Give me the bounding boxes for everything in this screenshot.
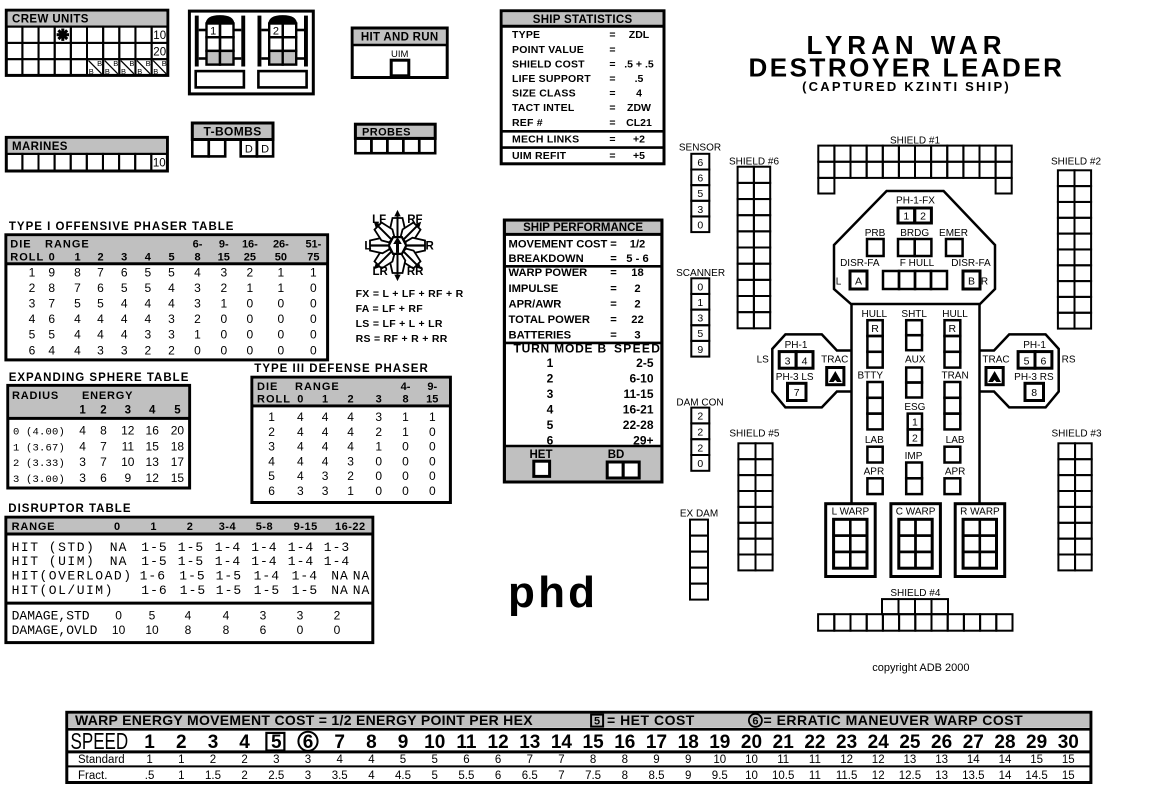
svg-text:0: 0 bbox=[334, 623, 341, 637]
svg-text:5: 5 bbox=[48, 328, 55, 342]
svg-text:.5: .5 bbox=[635, 73, 644, 85]
svg-text:0: 0 bbox=[697, 458, 703, 470]
svg-text:11: 11 bbox=[122, 439, 135, 453]
svg-text:5.5: 5.5 bbox=[458, 770, 474, 782]
svg-text:1-4: 1-4 bbox=[251, 554, 277, 569]
svg-text:1-6: 1-6 bbox=[141, 583, 167, 598]
svg-text:25: 25 bbox=[899, 732, 921, 753]
svg-text:4: 4 bbox=[368, 770, 375, 782]
svg-text:0: 0 bbox=[297, 623, 304, 637]
svg-text:10: 10 bbox=[153, 30, 166, 42]
svg-text:3: 3 bbox=[375, 410, 382, 424]
svg-text:4: 4 bbox=[368, 754, 375, 766]
svg-text:3: 3 bbox=[297, 484, 304, 498]
svg-text:51-: 51- bbox=[305, 239, 321, 251]
svg-text:=: = bbox=[609, 150, 615, 162]
svg-text:2: 2 bbox=[168, 343, 175, 357]
svg-text:1: 1 bbox=[220, 297, 227, 311]
svg-text:16-22: 16-22 bbox=[335, 521, 366, 533]
svg-text:1-4: 1-4 bbox=[251, 540, 277, 555]
svg-text:1: 1 bbox=[278, 265, 285, 279]
svg-text:IMPULSE: IMPULSE bbox=[509, 283, 559, 295]
svg-text:17: 17 bbox=[646, 732, 667, 753]
svg-text:13.5: 13.5 bbox=[962, 770, 984, 782]
svg-text:1: 1 bbox=[903, 211, 909, 223]
svg-text:SENSOR: SENSOR bbox=[679, 143, 721, 154]
svg-text:0 (4.00): 0 (4.00) bbox=[13, 427, 65, 439]
svg-text:HULL: HULL bbox=[862, 309, 888, 320]
svg-text:7: 7 bbox=[334, 732, 345, 753]
svg-text:TYPE I OFFENSIVE PHASER TABLE: TYPE I OFFENSIVE PHASER TABLE bbox=[9, 221, 235, 233]
svg-text:TACT INTEL: TACT INTEL bbox=[512, 102, 575, 114]
svg-text:30: 30 bbox=[1058, 732, 1079, 753]
svg-text:4: 4 bbox=[79, 439, 86, 453]
svg-text:8: 8 bbox=[185, 623, 192, 637]
svg-text:3: 3 bbox=[121, 343, 128, 357]
svg-text:1-4: 1-4 bbox=[292, 569, 318, 584]
svg-text:1-5: 1-5 bbox=[141, 554, 167, 569]
svg-text:4: 4 bbox=[268, 454, 275, 468]
svg-text:Fract.: Fract. bbox=[78, 770, 107, 782]
svg-text:0: 0 bbox=[375, 454, 382, 468]
svg-text:3: 3 bbox=[168, 328, 175, 342]
svg-text:1: 1 bbox=[150, 521, 157, 533]
svg-text:28: 28 bbox=[994, 732, 1015, 753]
svg-text:1-4: 1-4 bbox=[288, 540, 314, 555]
svg-text:1-5: 1-5 bbox=[216, 569, 242, 584]
svg-text:0: 0 bbox=[429, 469, 436, 483]
svg-text:8: 8 bbox=[366, 732, 377, 753]
svg-text:15: 15 bbox=[426, 393, 438, 405]
svg-text:RR: RR bbox=[407, 266, 424, 278]
svg-text:LIFE SUPPORT: LIFE SUPPORT bbox=[512, 73, 591, 85]
svg-text:HULL: HULL bbox=[942, 309, 968, 320]
svg-text:2: 2 bbox=[634, 283, 640, 295]
svg-text:2-5: 2-5 bbox=[636, 356, 654, 370]
svg-text:7: 7 bbox=[100, 455, 107, 469]
svg-text:15: 15 bbox=[583, 732, 605, 753]
svg-text:3: 3 bbox=[194, 281, 201, 295]
svg-text:4: 4 bbox=[144, 312, 151, 326]
svg-text:2: 2 bbox=[210, 754, 216, 766]
svg-text:ZDW: ZDW bbox=[627, 102, 651, 114]
svg-text:R: R bbox=[981, 277, 988, 288]
svg-text:0: 0 bbox=[278, 297, 285, 311]
svg-text:4: 4 bbox=[29, 312, 36, 326]
svg-text:4: 4 bbox=[297, 469, 304, 483]
svg-text:11: 11 bbox=[777, 754, 789, 766]
svg-text:18: 18 bbox=[171, 439, 185, 453]
svg-text:=: = bbox=[609, 73, 615, 85]
svg-text:POINT VALUE: POINT VALUE bbox=[512, 44, 584, 56]
svg-text:1-5: 1-5 bbox=[178, 540, 204, 555]
svg-text:6: 6 bbox=[697, 157, 703, 169]
svg-text:14: 14 bbox=[967, 754, 980, 766]
svg-text:R WARP: R WARP bbox=[960, 507, 1000, 518]
svg-text:13: 13 bbox=[519, 732, 540, 753]
svg-text:1-3: 1-3 bbox=[324, 540, 350, 555]
svg-text:2: 2 bbox=[241, 754, 247, 766]
svg-text:5: 5 bbox=[149, 608, 156, 622]
svg-text:ENERGY: ENERGY bbox=[82, 390, 133, 402]
svg-text:6: 6 bbox=[48, 312, 55, 326]
svg-text:9: 9 bbox=[48, 265, 55, 279]
svg-text:4-: 4- bbox=[401, 381, 411, 393]
svg-text:NA: NA bbox=[110, 554, 128, 569]
svg-text:5 - 6: 5 - 6 bbox=[626, 253, 648, 265]
svg-text:1: 1 bbox=[402, 425, 409, 439]
svg-text:2: 2 bbox=[634, 298, 640, 310]
svg-text:L WARP: L WARP bbox=[832, 507, 870, 518]
svg-text:1: 1 bbox=[310, 265, 317, 279]
svg-text:0: 0 bbox=[247, 343, 254, 357]
svg-text:NA: NA bbox=[353, 569, 371, 584]
svg-text:29: 29 bbox=[1026, 732, 1047, 753]
svg-text:RS = RF + R + RR: RS = RF + R + RR bbox=[356, 333, 448, 345]
svg-text:9: 9 bbox=[685, 770, 691, 782]
svg-text:7: 7 bbox=[100, 439, 107, 453]
svg-text:4: 4 bbox=[297, 440, 304, 454]
svg-text:6: 6 bbox=[121, 265, 128, 279]
svg-text:ZDL: ZDL bbox=[629, 29, 650, 41]
svg-text:0: 0 bbox=[375, 484, 382, 498]
svg-text:4: 4 bbox=[347, 440, 354, 454]
svg-text:8: 8 bbox=[223, 623, 230, 637]
svg-text:EMER: EMER bbox=[939, 228, 968, 239]
svg-text:6: 6 bbox=[29, 343, 36, 357]
svg-text:24: 24 bbox=[868, 732, 890, 753]
svg-text:4: 4 bbox=[149, 405, 156, 417]
svg-text:DAMAGE,STD: DAMAGE,STD bbox=[12, 608, 90, 623]
svg-text:6.5: 6.5 bbox=[522, 770, 538, 782]
svg-text:7.5: 7.5 bbox=[585, 770, 601, 782]
svg-text:9-: 9- bbox=[219, 239, 229, 251]
svg-text:F HULL: F HULL bbox=[900, 258, 935, 269]
svg-text:3: 3 bbox=[305, 754, 311, 766]
svg-text:1: 1 bbox=[375, 440, 382, 454]
svg-text:0: 0 bbox=[402, 454, 409, 468]
svg-text:BREAKDOWN: BREAKDOWN bbox=[509, 253, 584, 265]
svg-text:0: 0 bbox=[697, 219, 703, 231]
svg-text:RF: RF bbox=[407, 214, 422, 226]
svg-text:5: 5 bbox=[431, 754, 437, 766]
svg-text:8: 8 bbox=[1031, 387, 1037, 399]
svg-text:AUX: AUX bbox=[905, 355, 926, 366]
svg-text:R: R bbox=[425, 240, 434, 252]
svg-text:4: 4 bbox=[144, 297, 151, 311]
svg-text:0: 0 bbox=[220, 328, 227, 342]
svg-text:RS: RS bbox=[1062, 355, 1076, 366]
svg-text:50: 50 bbox=[275, 252, 287, 264]
svg-text:4: 4 bbox=[322, 454, 329, 468]
svg-text:2: 2 bbox=[100, 405, 106, 417]
svg-text:0: 0 bbox=[220, 312, 227, 326]
svg-text:3: 3 bbox=[194, 297, 201, 311]
svg-text:=: = bbox=[610, 267, 617, 279]
svg-text:20: 20 bbox=[741, 732, 762, 753]
svg-text:22-28: 22-28 bbox=[623, 418, 654, 432]
svg-text:4: 4 bbox=[168, 297, 175, 311]
svg-text:T-BOMBS: T-BOMBS bbox=[204, 124, 262, 138]
svg-text:1: 1 bbox=[79, 405, 86, 417]
svg-text:0: 0 bbox=[247, 312, 254, 326]
svg-text:B: B bbox=[113, 59, 118, 68]
svg-text:1: 1 bbox=[322, 393, 328, 405]
svg-text:=: = bbox=[609, 134, 615, 146]
svg-text:8: 8 bbox=[402, 393, 408, 405]
svg-text:UIM REFIT: UIM REFIT bbox=[512, 150, 567, 162]
svg-text:6: 6 bbox=[100, 471, 107, 485]
svg-text:1-5: 1-5 bbox=[254, 583, 280, 598]
svg-text:0: 0 bbox=[402, 440, 409, 454]
svg-text:4: 4 bbox=[145, 252, 152, 264]
svg-text:11: 11 bbox=[456, 732, 477, 753]
svg-text:9-: 9- bbox=[427, 381, 437, 393]
svg-text:12.5: 12.5 bbox=[899, 770, 921, 782]
svg-text:PH-1-FX: PH-1-FX bbox=[896, 196, 935, 207]
svg-text:2: 2 bbox=[187, 521, 194, 533]
svg-text:1: 1 bbox=[29, 265, 36, 279]
svg-text:8: 8 bbox=[74, 265, 81, 279]
svg-text:0: 0 bbox=[278, 312, 285, 326]
svg-text:0: 0 bbox=[278, 328, 285, 342]
svg-text:27: 27 bbox=[963, 732, 984, 753]
svg-text:4: 4 bbox=[185, 608, 192, 622]
svg-text:3: 3 bbox=[273, 754, 279, 766]
svg-text:5: 5 bbox=[268, 469, 275, 483]
svg-text:A: A bbox=[855, 276, 862, 288]
svg-text:SHIP STATISTICS: SHIP STATISTICS bbox=[533, 14, 633, 26]
svg-text:8: 8 bbox=[194, 252, 200, 264]
svg-text:2: 2 bbox=[334, 608, 341, 622]
svg-text:22: 22 bbox=[631, 314, 643, 326]
svg-text:DISRUPTOR TABLE: DISRUPTOR TABLE bbox=[8, 503, 131, 515]
svg-text:15: 15 bbox=[1030, 754, 1043, 766]
svg-text:8: 8 bbox=[48, 281, 55, 295]
svg-text:APR: APR bbox=[864, 467, 885, 478]
svg-text:3: 3 bbox=[220, 265, 227, 279]
svg-text:4: 4 bbox=[194, 265, 201, 279]
svg-text:0: 0 bbox=[194, 343, 201, 357]
svg-text:HIT(OL/UIM): HIT(OL/UIM) bbox=[12, 583, 114, 598]
svg-text:PH-1: PH-1 bbox=[1023, 340, 1046, 351]
svg-text:13: 13 bbox=[146, 455, 160, 469]
svg-text:1-4: 1-4 bbox=[288, 554, 314, 569]
svg-text:BATTERIES: BATTERIES bbox=[509, 330, 572, 342]
svg-text:2: 2 bbox=[144, 343, 151, 357]
svg-text:8.5: 8.5 bbox=[649, 770, 665, 782]
svg-text:10: 10 bbox=[745, 754, 758, 766]
svg-text:8: 8 bbox=[622, 770, 628, 782]
svg-text:0: 0 bbox=[310, 343, 317, 357]
svg-text:LAB: LAB bbox=[946, 435, 965, 446]
svg-text:CREW UNITS: CREW UNITS bbox=[12, 14, 89, 26]
svg-text:6: 6 bbox=[495, 770, 501, 782]
svg-text:EXPANDING SPHERE TABLE: EXPANDING SPHERE TABLE bbox=[9, 372, 190, 384]
svg-text:7: 7 bbox=[48, 297, 55, 311]
svg-text:6: 6 bbox=[752, 716, 758, 728]
svg-text:1-4: 1-4 bbox=[254, 569, 280, 584]
svg-text:4: 4 bbox=[347, 410, 354, 424]
svg-text:BD: BD bbox=[608, 449, 625, 461]
svg-text:= HET COST: = HET COST bbox=[607, 712, 695, 728]
svg-text:15: 15 bbox=[1062, 754, 1075, 766]
svg-text:1-5: 1-5 bbox=[178, 554, 204, 569]
svg-text:DIE: DIE bbox=[10, 239, 31, 251]
svg-text:ROLL: ROLL bbox=[257, 393, 291, 405]
svg-text:SHIP PERFORMANCE: SHIP PERFORMANCE bbox=[523, 222, 643, 234]
svg-text:0: 0 bbox=[429, 484, 436, 498]
svg-text:1-5: 1-5 bbox=[141, 540, 167, 555]
svg-text:4: 4 bbox=[547, 403, 554, 417]
svg-text:LS = LF + L + LR: LS = LF + L + LR bbox=[356, 318, 443, 330]
svg-text:REF #: REF # bbox=[512, 117, 543, 129]
svg-text:B: B bbox=[105, 67, 110, 76]
svg-text:5: 5 bbox=[594, 716, 600, 728]
svg-text:DISR-FA: DISR-FA bbox=[840, 258, 880, 269]
svg-text:1: 1 bbox=[144, 732, 155, 753]
svg-text:0: 0 bbox=[429, 440, 436, 454]
svg-text:6: 6 bbox=[1040, 355, 1046, 367]
svg-text:LS: LS bbox=[757, 355, 770, 366]
svg-text:LR: LR bbox=[373, 266, 389, 278]
svg-text:7: 7 bbox=[558, 754, 564, 766]
svg-text:B: B bbox=[129, 59, 134, 68]
svg-text:4: 4 bbox=[239, 732, 250, 753]
svg-text:SHTL: SHTL bbox=[901, 309, 927, 320]
svg-text:3: 3 bbox=[208, 732, 219, 753]
svg-text:5: 5 bbox=[29, 328, 36, 342]
svg-text:5-8: 5-8 bbox=[256, 521, 273, 533]
svg-text:0: 0 bbox=[49, 252, 55, 264]
svg-text:2: 2 bbox=[247, 265, 254, 279]
svg-text:0: 0 bbox=[402, 484, 409, 498]
svg-text:8: 8 bbox=[622, 754, 628, 766]
svg-text:1: 1 bbox=[402, 410, 409, 424]
svg-text:HET: HET bbox=[530, 449, 553, 461]
svg-text:SHIELD #4: SHIELD #4 bbox=[890, 588, 940, 599]
svg-text:phd: phd bbox=[508, 568, 598, 617]
svg-text:6: 6 bbox=[697, 173, 703, 185]
svg-text:2: 2 bbox=[273, 26, 279, 38]
svg-text:3: 3 bbox=[29, 297, 36, 311]
svg-text:2: 2 bbox=[268, 425, 275, 439]
svg-text:TYPE: TYPE bbox=[512, 29, 540, 41]
svg-text:3-4: 3-4 bbox=[219, 521, 237, 533]
svg-text:2: 2 bbox=[176, 732, 187, 753]
svg-text:4: 4 bbox=[121, 312, 128, 326]
svg-text:=: = bbox=[610, 253, 617, 265]
svg-text:9: 9 bbox=[685, 754, 691, 766]
svg-text:3.5: 3.5 bbox=[332, 770, 348, 782]
svg-text:9: 9 bbox=[653, 754, 659, 766]
svg-text:1 (3.67): 1 (3.67) bbox=[13, 442, 65, 454]
svg-text:5: 5 bbox=[400, 754, 406, 766]
svg-text:HIT (UIM): HIT (UIM) bbox=[12, 554, 96, 569]
svg-text:15: 15 bbox=[1062, 770, 1075, 782]
svg-text:1-5: 1-5 bbox=[180, 583, 206, 598]
svg-text:TYPE III DEFENSE PHASER: TYPE III DEFENSE PHASER bbox=[254, 363, 428, 375]
svg-text:5: 5 bbox=[144, 281, 151, 295]
svg-text:3 (3.00): 3 (3.00) bbox=[13, 474, 65, 486]
svg-text:L: L bbox=[836, 277, 842, 288]
svg-text:10.5: 10.5 bbox=[772, 770, 794, 782]
svg-text:1: 1 bbox=[268, 410, 275, 424]
svg-text:FA = LF + RF: FA = LF + RF bbox=[356, 303, 424, 315]
svg-text:3: 3 bbox=[125, 405, 131, 417]
svg-text:8: 8 bbox=[100, 424, 107, 438]
svg-text:D: D bbox=[245, 143, 253, 155]
svg-text:17: 17 bbox=[171, 455, 185, 469]
svg-text:4: 4 bbox=[336, 754, 343, 766]
svg-text:0: 0 bbox=[114, 521, 121, 533]
svg-text:26-: 26- bbox=[273, 239, 289, 251]
svg-text:SHIELD #2: SHIELD #2 bbox=[1051, 156, 1101, 167]
svg-text:2.5: 2.5 bbox=[268, 770, 284, 782]
svg-text:1: 1 bbox=[278, 281, 285, 295]
svg-text:21: 21 bbox=[773, 732, 795, 753]
svg-text:5: 5 bbox=[431, 770, 437, 782]
svg-text:10: 10 bbox=[112, 623, 126, 637]
svg-text:SHIELD #5: SHIELD #5 bbox=[729, 429, 779, 440]
svg-text:4: 4 bbox=[97, 328, 104, 342]
svg-text:7: 7 bbox=[527, 754, 533, 766]
svg-text:0: 0 bbox=[402, 469, 409, 483]
svg-text:B: B bbox=[121, 67, 126, 76]
svg-text:4: 4 bbox=[121, 328, 128, 342]
svg-text:ROLL: ROLL bbox=[10, 252, 44, 264]
svg-text:2: 2 bbox=[912, 432, 918, 444]
svg-text:B: B bbox=[97, 59, 102, 68]
svg-text:6: 6 bbox=[97, 281, 104, 295]
svg-text:3: 3 bbox=[144, 328, 151, 342]
svg-text:NA: NA bbox=[331, 569, 349, 584]
svg-text:2: 2 bbox=[220, 281, 227, 295]
svg-text:1: 1 bbox=[194, 328, 201, 342]
svg-text:PH-3 RS: PH-3 RS bbox=[1014, 372, 1054, 383]
svg-text:6-10: 6-10 bbox=[629, 372, 653, 386]
svg-text:DESTROYER LEADER: DESTROYER LEADER bbox=[749, 53, 1065, 83]
svg-text:0: 0 bbox=[310, 297, 317, 311]
svg-text:1: 1 bbox=[429, 410, 436, 424]
svg-text:HIT(OVERLOAD): HIT(OVERLOAD) bbox=[12, 569, 133, 584]
svg-text:1.5: 1.5 bbox=[205, 770, 221, 782]
svg-text:1: 1 bbox=[247, 281, 254, 295]
svg-text:Standard: Standard bbox=[78, 754, 125, 766]
svg-text:5: 5 bbox=[74, 297, 81, 311]
svg-text:4: 4 bbox=[74, 328, 81, 342]
svg-text:= ERRATIC MANEUVER WARP COST: = ERRATIC MANEUVER WARP COST bbox=[764, 712, 1024, 728]
svg-text:2: 2 bbox=[194, 312, 201, 326]
svg-text:12: 12 bbox=[872, 770, 885, 782]
svg-text:=: = bbox=[610, 283, 617, 295]
svg-text:4: 4 bbox=[636, 88, 642, 100]
svg-text:13: 13 bbox=[935, 754, 948, 766]
svg-text:25: 25 bbox=[244, 252, 256, 264]
svg-text:6: 6 bbox=[260, 623, 267, 637]
svg-text:PROBES: PROBES bbox=[362, 127, 411, 139]
svg-text:TOTAL POWER: TOTAL POWER bbox=[509, 314, 590, 326]
svg-text:1: 1 bbox=[697, 297, 703, 309]
svg-text:SHIELD #3: SHIELD #3 bbox=[1051, 429, 1101, 440]
svg-text:EX DAM: EX DAM bbox=[680, 509, 718, 520]
svg-text:0: 0 bbox=[247, 328, 254, 342]
svg-text:0: 0 bbox=[220, 343, 227, 357]
svg-text:0: 0 bbox=[697, 281, 703, 293]
svg-text:7: 7 bbox=[97, 265, 104, 279]
svg-text:10: 10 bbox=[424, 732, 445, 753]
svg-text:7: 7 bbox=[794, 387, 800, 399]
